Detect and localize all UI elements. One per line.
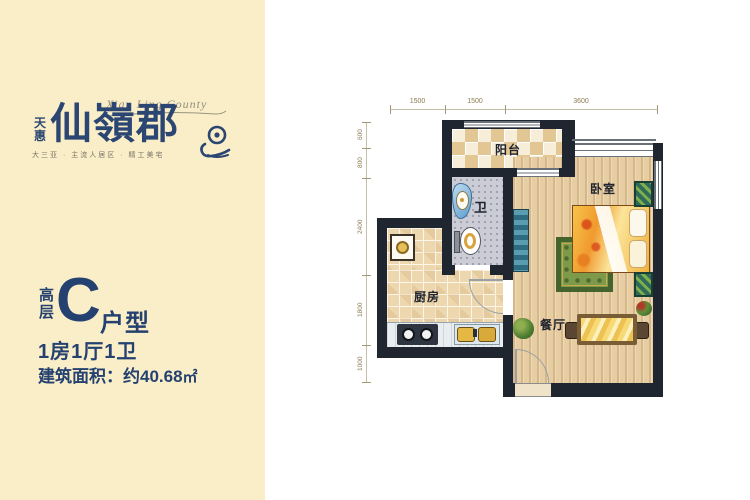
room-label-kitchen: 厨房: [405, 288, 449, 305]
kitchen-sink-basin-right: [478, 327, 496, 342]
dimension-line-top: [390, 109, 658, 110]
toilet-seat-ring: [464, 233, 476, 249]
entry-door-leaf: [515, 349, 517, 383]
brand-prefix-characters: 天 惠: [32, 117, 48, 143]
room-label-bathroom: 卫: [472, 197, 490, 216]
tv-cabinet: [513, 209, 529, 272]
dim-tick: [390, 105, 391, 114]
dim-left-1: 600: [357, 122, 367, 148]
wall-nook-top: [377, 218, 452, 228]
dim-tick: [445, 105, 446, 114]
entry-threshold: [515, 383, 551, 397]
dim-tick: [362, 382, 371, 383]
brand-panel: Xian Ling County 天 惠 仙嶺郡 大三亚 · 主流人居区 · 精…: [0, 0, 265, 500]
wall-left-column: [442, 120, 452, 275]
area-label: 建筑面积：: [38, 367, 123, 386]
wall-bath-bottom-stub-right: [490, 265, 503, 275]
unit-type-letter: C: [56, 271, 101, 331]
room-label-dining: 餐厅: [531, 316, 575, 333]
dim-left-2: 800: [357, 148, 367, 178]
dim-top-3: 3600: [505, 98, 657, 105]
dim-left-5: 1000: [357, 345, 367, 382]
wall-bath-bottom-stub-left: [442, 265, 455, 275]
wall-central-upper: [503, 177, 513, 280]
floorplan: 1500 1500 3600 600 800 2400 1800 1000: [360, 95, 672, 407]
dim-tick: [505, 105, 506, 114]
wall-kitchen-left: [377, 218, 387, 358]
plant-corner: [636, 301, 652, 316]
wall-bottom-right: [551, 383, 663, 397]
floor-level-label: 高 层: [38, 287, 55, 321]
bed: [572, 205, 650, 273]
stove-burner-left: [402, 328, 415, 341]
unit-rooms-summary: 1房1厅1卫: [38, 335, 137, 364]
sink-drain: [460, 198, 464, 202]
balcony-window: [464, 121, 540, 128]
bedroom-bay-window: [575, 143, 653, 157]
area-unit: ㎡: [183, 369, 198, 386]
nightstand-top: [634, 181, 653, 207]
brand-name: 仙嶺郡: [50, 102, 179, 148]
wall-balcony-bottom-left: [442, 168, 517, 177]
wall-bottom-left: [503, 383, 515, 397]
dim-left-3: 2400: [357, 178, 367, 275]
unit-area-line: 建筑面积：约40.68㎡: [38, 362, 198, 387]
wall-balcony-bottom-right: [559, 168, 575, 177]
dim-top-1: 1500: [390, 98, 445, 105]
floor-level-char-bottom: 层: [38, 304, 55, 321]
room-label-balcony: 阳台: [486, 141, 530, 158]
wall-central-lower: [503, 315, 513, 347]
stove-burner-right: [420, 328, 433, 341]
washing-machine-door: [396, 241, 409, 254]
dim-top-2: 1500: [445, 98, 505, 105]
room-label-bedroom: 卧室: [581, 180, 625, 197]
kitchen-door-leaf: [469, 279, 503, 281]
nightstand-bottom: [634, 272, 653, 297]
kitchen-faucet: [473, 329, 477, 337]
balcony-sliding-door: [517, 168, 561, 177]
unit-type-suffix: 户型: [100, 303, 150, 338]
bedroom-side-window: [654, 161, 662, 209]
bay-window-outer-line: [572, 139, 656, 141]
dining-table: [577, 314, 637, 345]
floor-level-char-top: 高: [38, 287, 55, 304]
area-value: 约40.68: [123, 367, 183, 386]
brand-tagline: 大三亚 · 主流人居区 · 精工美宅: [32, 150, 217, 160]
pillow-bottom: [629, 240, 647, 268]
wall-kitchen-bottom: [377, 347, 513, 358]
dining-chair-right: [635, 322, 649, 339]
brand-prefix-bottom: 惠: [32, 130, 48, 143]
dim-tick: [657, 105, 658, 114]
dim-left-4: 1800: [357, 275, 367, 345]
pillow-top: [629, 209, 647, 237]
